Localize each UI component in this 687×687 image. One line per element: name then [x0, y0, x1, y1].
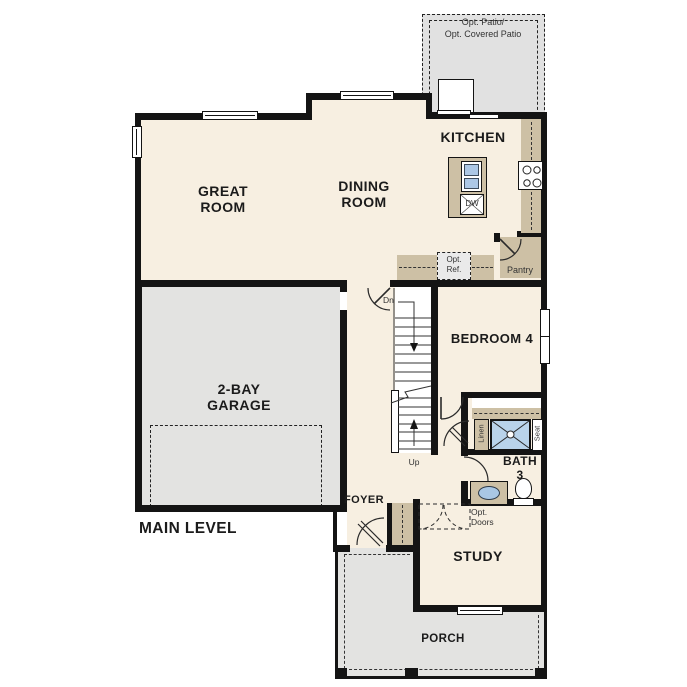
fridge-label-line1: Opt. [437, 255, 471, 265]
closet-shelf-dash [474, 413, 539, 414]
window-pane-line [205, 115, 255, 116]
room-label-bedroom4: BEDROOM 4 [441, 332, 543, 347]
wall-kitchen-bottom [390, 280, 547, 287]
wall-garage-bottom [135, 505, 347, 512]
vanity-sink [478, 486, 500, 500]
porch-floor-left [338, 548, 413, 676]
stair-shaft [395, 287, 431, 453]
counter-dash [399, 267, 435, 268]
porch-dashed-bottom [344, 669, 538, 670]
porch-dashed-left [344, 554, 345, 669]
room-label-dining-room: DINING ROOM [318, 178, 410, 210]
patio-slider-panel-left [437, 110, 471, 115]
wall-garage-top [135, 280, 347, 287]
dining-upper-floor [310, 99, 432, 119]
room-label-kitchen: KITCHEN [427, 129, 519, 145]
room-label-great-room: GREAT ROOM [177, 183, 269, 215]
optional-doors-line2: Doors [471, 517, 507, 527]
window-pane-line [460, 610, 500, 611]
porch-dashed-right [538, 615, 539, 669]
wall-closet-left [461, 392, 468, 456]
wall-garage-right-upper [340, 280, 347, 292]
porch-edge-left [335, 548, 338, 679]
room-label-bath: BATH 3 [494, 455, 546, 483]
floor-plan: GREAT ROOM DINING ROOM KITCHEN BEDROOM 4… [0, 0, 687, 687]
wall-study-left [413, 499, 420, 612]
patio-annotation: Opt. Patio/ Opt. Covered Patio [422, 16, 544, 40]
island-sink-basin-bottom [464, 178, 479, 189]
window-pane-line [343, 95, 391, 96]
island-sink-basin-top [464, 164, 479, 176]
foyer-closet-dash [402, 505, 403, 543]
wall-foyer-bottom-right [386, 545, 420, 552]
patio-annotation-line1: Opt. Patio/ [422, 16, 544, 28]
room-label-study: STUDY [428, 548, 528, 564]
bath-name: BATH [494, 455, 546, 469]
garage-door-dashed-outline [150, 425, 322, 507]
stairs-up-label: Up [398, 457, 430, 467]
porch-post-left [335, 668, 347, 679]
patio-slider-panel-right [469, 114, 499, 119]
pantry-label: Pantry [498, 265, 542, 275]
window-greatroom-left [132, 126, 142, 158]
toilet-tank [513, 498, 534, 506]
stove-cooktop [518, 161, 543, 190]
optional-fridge-label: Opt. Ref. [437, 255, 471, 275]
window-pane-line [136, 129, 137, 155]
wall-garage-right-lower [340, 310, 347, 512]
plan-level-title: MAIN LEVEL [139, 520, 259, 538]
optional-doors-line1: Opt. [471, 507, 507, 517]
wall-garage-left [135, 280, 142, 512]
stairs-down-label: Dn [383, 295, 394, 305]
wall-foyer-left-thin [333, 510, 337, 547]
wall-stairs-right [431, 287, 438, 455]
porch-edge-bottom [335, 676, 547, 679]
optional-doors-label: Opt. Doors [471, 507, 507, 527]
linen-label: Linen [477, 419, 486, 449]
window-greatroom-top [202, 111, 258, 120]
porch-dashed-top [344, 554, 410, 555]
window-study-bottom [457, 606, 503, 615]
window-dining-top [340, 91, 394, 100]
porch-post-right [535, 668, 547, 679]
room-label-porch: PORCH [403, 633, 483, 646]
room-label-garage: 2-BAY GARAGE [187, 381, 291, 413]
dishwasher-label: DW [460, 199, 484, 208]
stair-railing [391, 390, 399, 453]
bath-number: 3 [494, 469, 546, 483]
porch-post-middle [405, 668, 418, 679]
fridge-label-line2: Ref. [437, 265, 471, 275]
shower [490, 419, 531, 451]
patio-step [438, 79, 474, 113]
seat-label: Seat [533, 419, 542, 449]
room-label-foyer: FOYER [324, 494, 404, 507]
bedroom4-closet-interior [472, 398, 541, 408]
counter-dash [472, 267, 493, 268]
patio-annotation-line2: Opt. Covered Patio [422, 28, 544, 40]
